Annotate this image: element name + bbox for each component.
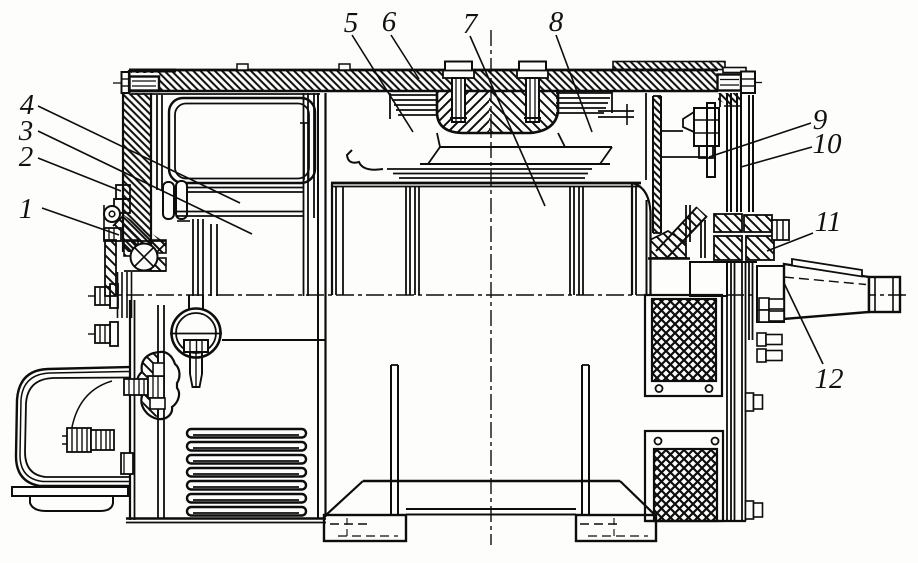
svg-text:11: 11 bbox=[815, 206, 842, 238]
svg-text:6: 6 bbox=[382, 6, 397, 38]
svg-text:12: 12 bbox=[815, 363, 844, 395]
svg-text:7: 7 bbox=[463, 8, 479, 40]
svg-text:8: 8 bbox=[549, 6, 564, 38]
svg-text:2: 2 bbox=[19, 141, 34, 173]
svg-text:5: 5 bbox=[344, 7, 359, 39]
svg-text:10: 10 bbox=[813, 128, 843, 160]
svg-text:1: 1 bbox=[19, 193, 34, 225]
